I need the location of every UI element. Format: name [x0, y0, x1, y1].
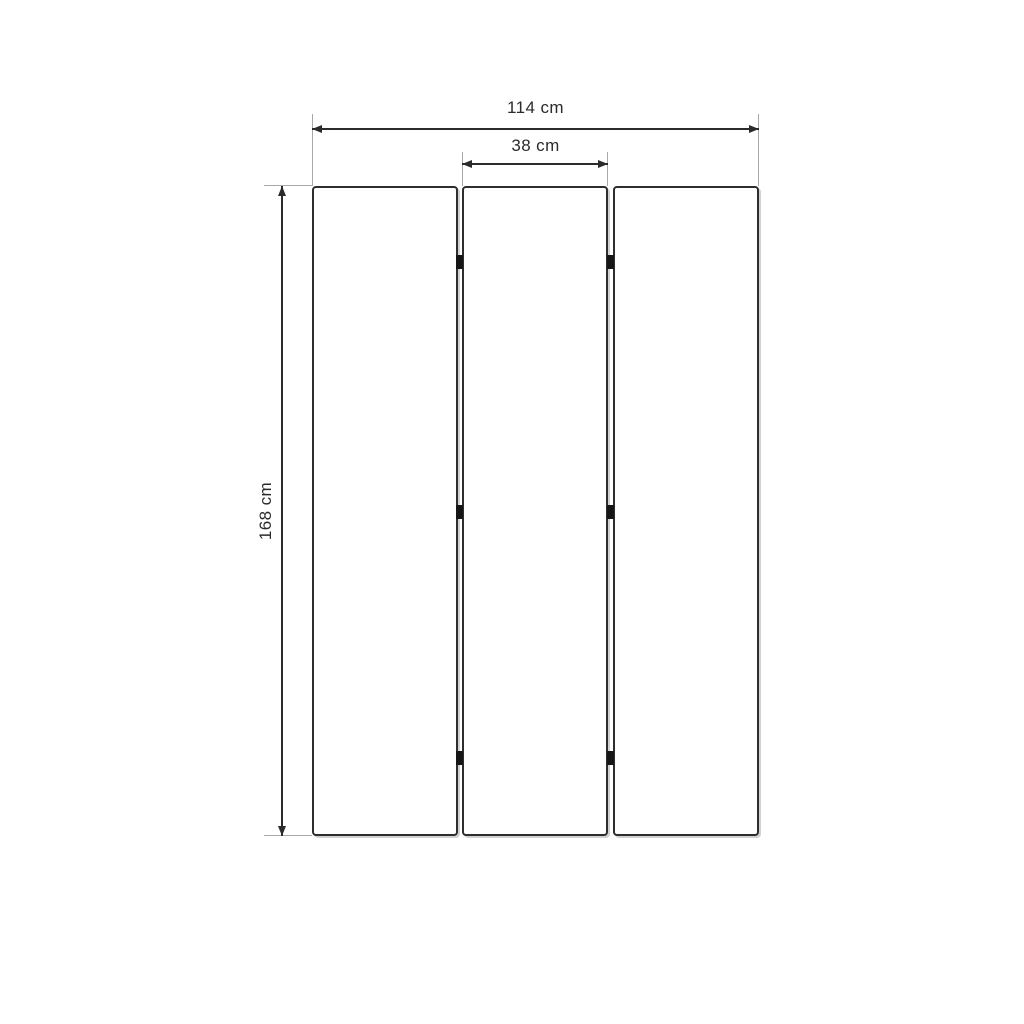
extension-line-height-top [264, 185, 312, 186]
panel-width-label: 38 cm [462, 134, 609, 158]
hinge-icon [607, 505, 614, 519]
hinge-icon [607, 255, 614, 269]
panel-middle [462, 186, 608, 836]
hinge-icon [456, 751, 463, 765]
arrowhead-right-icon [598, 160, 608, 168]
hinge-icon [456, 505, 463, 519]
width-dimension-line [312, 128, 759, 130]
arrowhead-down-icon [278, 826, 286, 836]
overall-width-label: 114 cm [312, 96, 759, 120]
hinge-icon [607, 751, 614, 765]
arrowhead-right-icon [749, 125, 759, 133]
arrowhead-up-icon [278, 186, 286, 196]
height-dimension-line [281, 186, 283, 836]
hinge-icon [456, 255, 463, 269]
panel-left [312, 186, 458, 836]
panel-right [613, 186, 759, 836]
extension-line-height-bottom [264, 835, 312, 836]
panel-width-dimension-line [462, 163, 608, 165]
dimension-diagram: 114 cm 38 cm 168 cm [0, 0, 1024, 1024]
arrowhead-left-icon [312, 125, 322, 133]
arrowhead-left-icon [462, 160, 472, 168]
